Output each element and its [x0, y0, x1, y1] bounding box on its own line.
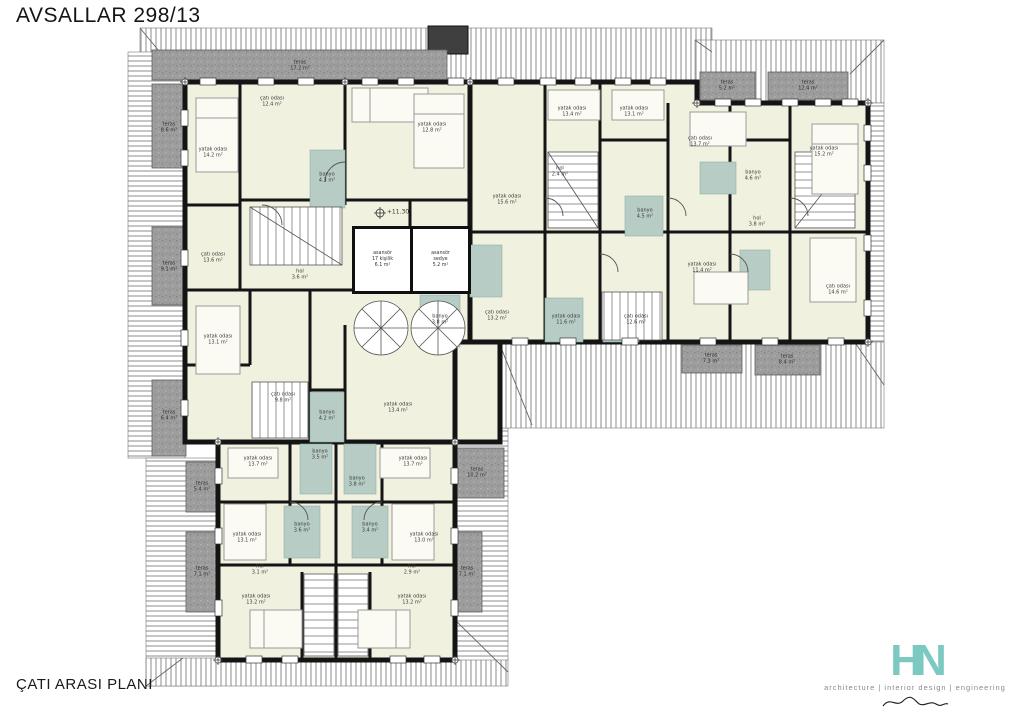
- logo-monogram: HN: [820, 641, 1010, 681]
- drawing-sheet: AVSALLAR 298/13: [0, 0, 1024, 717]
- elevator-shaft-right: asansör sedye 5.2 m²: [410, 226, 471, 294]
- firm-logo: HN architecture | interior design | engi…: [820, 641, 1010, 711]
- plan-caption: ÇATI ARASI PLANI: [16, 676, 153, 693]
- logo-tagline: architecture | interior design | enginee…: [820, 683, 1010, 692]
- elevator-shaft-left: asansör 17 kişilik 6.1 m²: [352, 226, 413, 294]
- signature-icon: [880, 693, 950, 711]
- floor-plan-canvas: [0, 0, 1024, 717]
